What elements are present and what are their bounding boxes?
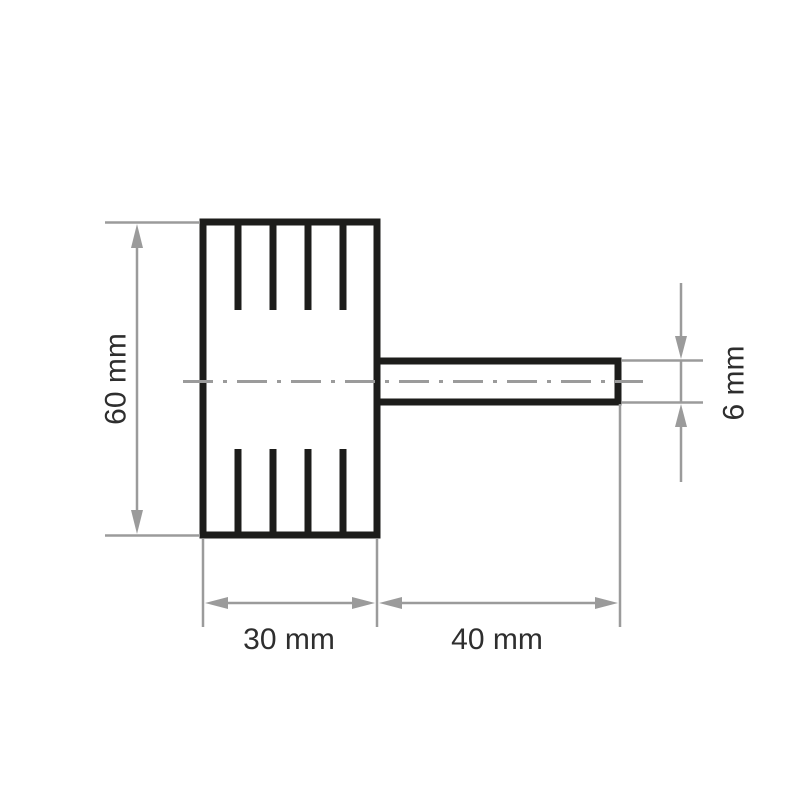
wheel-outline <box>203 222 377 535</box>
dimension-wheel-diameter: 60 mm <box>100 223 201 536</box>
arrow-right-icon <box>595 597 618 609</box>
flap-wheel-technical-drawing: 60 mm 6 mm 30 mm 40 mm <box>0 0 800 800</box>
dim-label-shaft-length: 40 mm <box>451 623 543 656</box>
dim-label-wheel-diameter: 60 mm <box>100 333 133 425</box>
arrow-up-icon <box>131 224 143 248</box>
dimension-shaft-length: 40 mm <box>379 404 620 656</box>
drawing-canvas: 60 mm 6 mm 30 mm 40 mm <box>0 0 800 800</box>
dimension-wheel-width: 30 mm <box>203 539 377 656</box>
arrow-up-icon <box>675 404 687 427</box>
arrow-down-icon <box>675 336 687 359</box>
arrow-left-icon <box>379 597 402 609</box>
arrow-left-icon <box>205 597 228 609</box>
dim-label-wheel-width: 30 mm <box>243 623 335 656</box>
wheel-body <box>203 222 377 535</box>
arrow-right-icon <box>352 597 375 609</box>
arrow-down-icon <box>131 510 143 534</box>
dim-label-shaft-diameter: 6 mm <box>718 346 751 421</box>
